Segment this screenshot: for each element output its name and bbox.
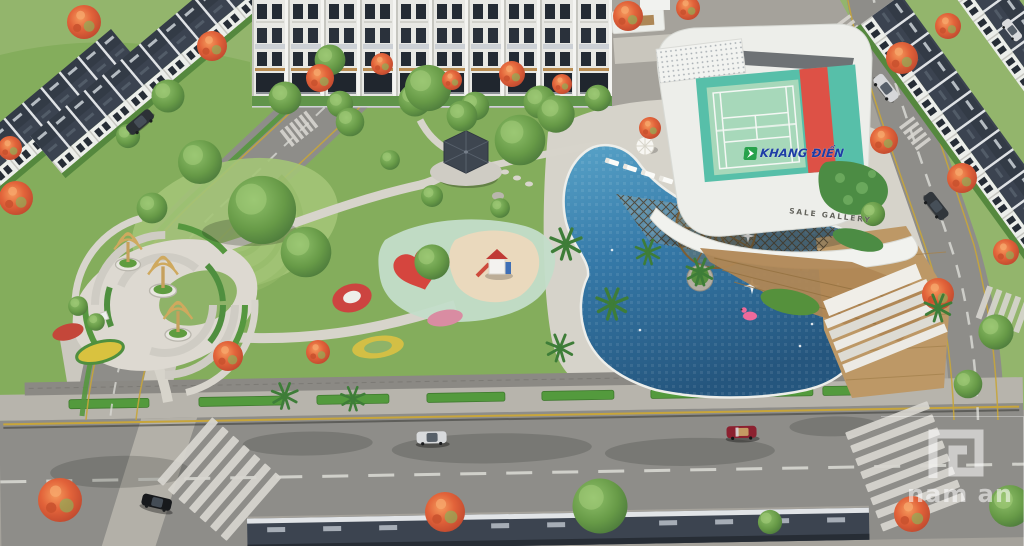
watermark-frame-lines [881,416,1024,546]
khang-dien-logo-icon [743,147,757,160]
aerial-render-scene: KHANG ĐIỀN SALE GALLERY nam an [0,0,1024,546]
car-silver-coupe [415,431,449,448]
khang-dien-sign: KHANG ĐIỀN [743,146,844,160]
car-red-convertible [725,426,759,443]
scene-render [0,0,1024,546]
brand-text: KHANG ĐIỀN [759,146,844,160]
nam-an-watermark: nam an [893,410,1024,546]
